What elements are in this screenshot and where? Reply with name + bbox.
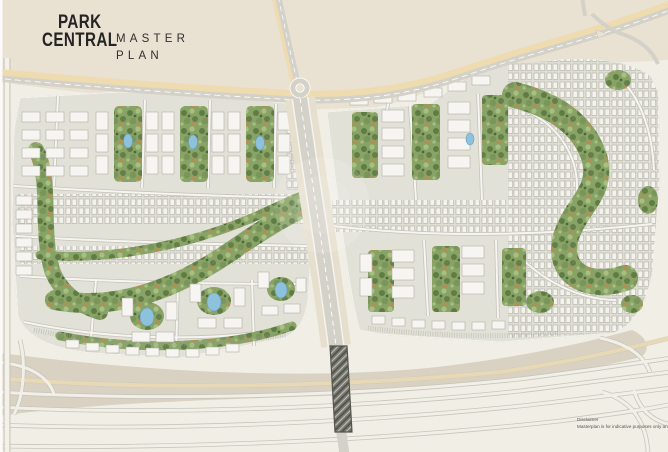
page-edge	[0, 0, 3, 452]
page-title-line1: MASTER	[116, 31, 189, 48]
east-district	[327, 59, 660, 342]
watermark	[274, 157, 370, 253]
masterplan-page: PARK CENTRAL MASTER PLAN Disclaimer Mast…	[0, 0, 668, 452]
disclaimer: Disclaimer Masterplan is for indicative …	[577, 416, 668, 431]
roundabout	[290, 78, 310, 98]
page-title-line2: PLAN	[116, 48, 189, 65]
page-title: MASTER PLAN	[116, 31, 189, 66]
west-district	[12, 92, 312, 358]
disclaimer-text: Masterplan is for indicative purposes on…	[577, 423, 668, 430]
disclaimer-heading: Disclaimer	[577, 416, 668, 423]
pond-east	[466, 133, 474, 145]
masterplan-map	[0, 0, 668, 452]
brand-line2: CENTRAL	[42, 32, 117, 50]
brand-logo: PARK CENTRAL	[42, 14, 117, 50]
